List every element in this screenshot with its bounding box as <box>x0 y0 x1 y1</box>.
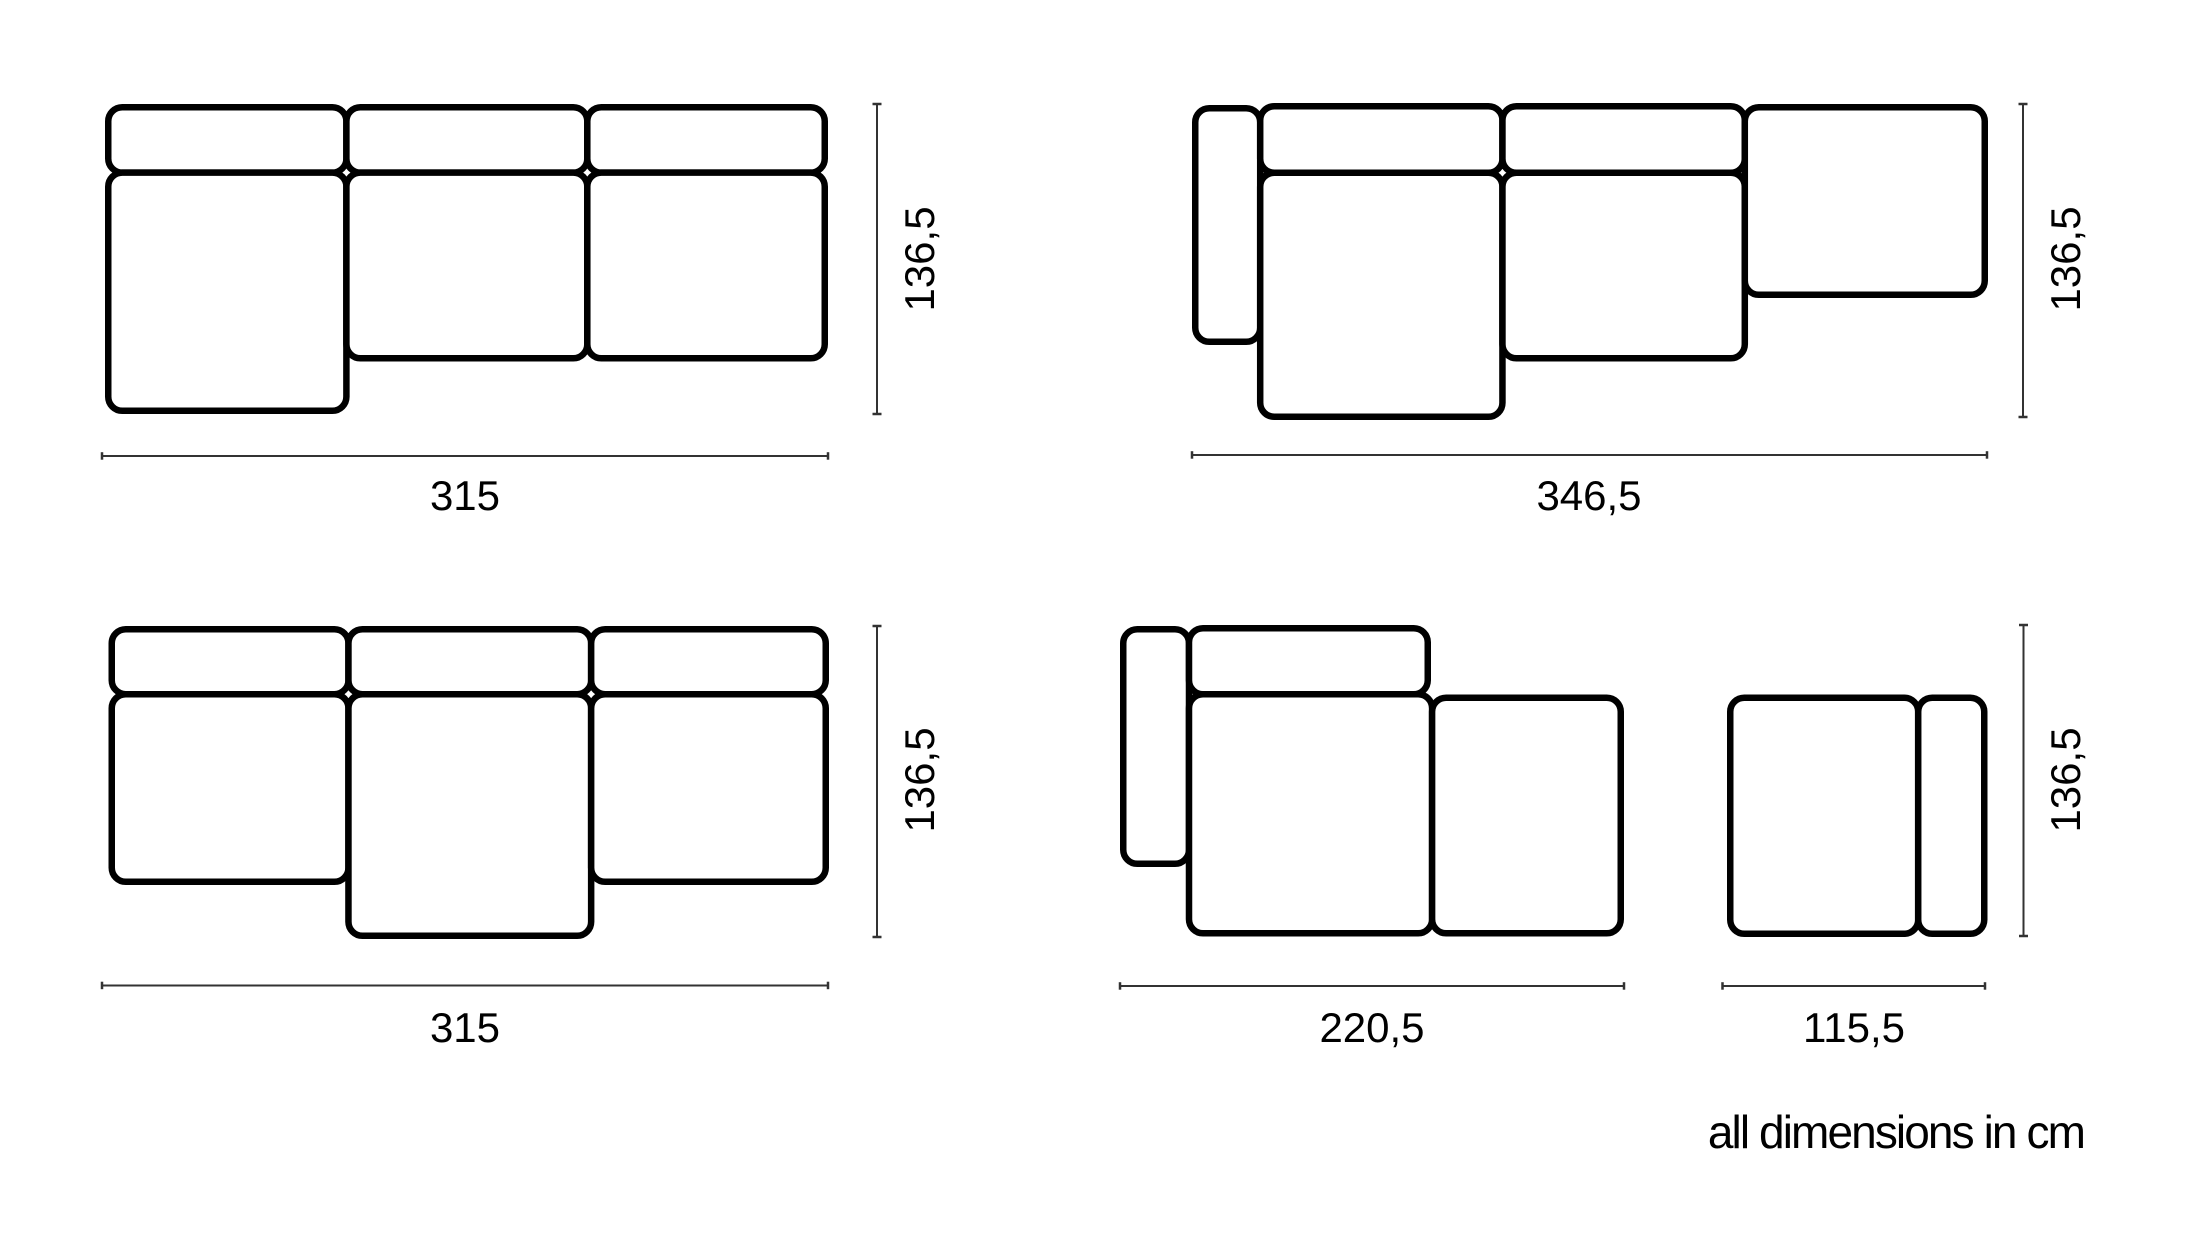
svg-text:220,5: 220,5 <box>1319 1004 1424 1051</box>
svg-text:136,5: 136,5 <box>2042 727 2089 832</box>
svg-text:315: 315 <box>430 472 500 519</box>
svg-text:115,5: 115,5 <box>1803 1004 1905 1051</box>
svg-text:136,5: 136,5 <box>2042 206 2089 311</box>
svg-text:136,5: 136,5 <box>896 727 943 832</box>
svg-text:all dimensions in cm: all dimensions in cm <box>1708 1106 2084 1158</box>
svg-text:346,5: 346,5 <box>1536 472 1641 519</box>
svg-text:315: 315 <box>430 1004 500 1051</box>
svg-text:136,5: 136,5 <box>896 206 943 311</box>
